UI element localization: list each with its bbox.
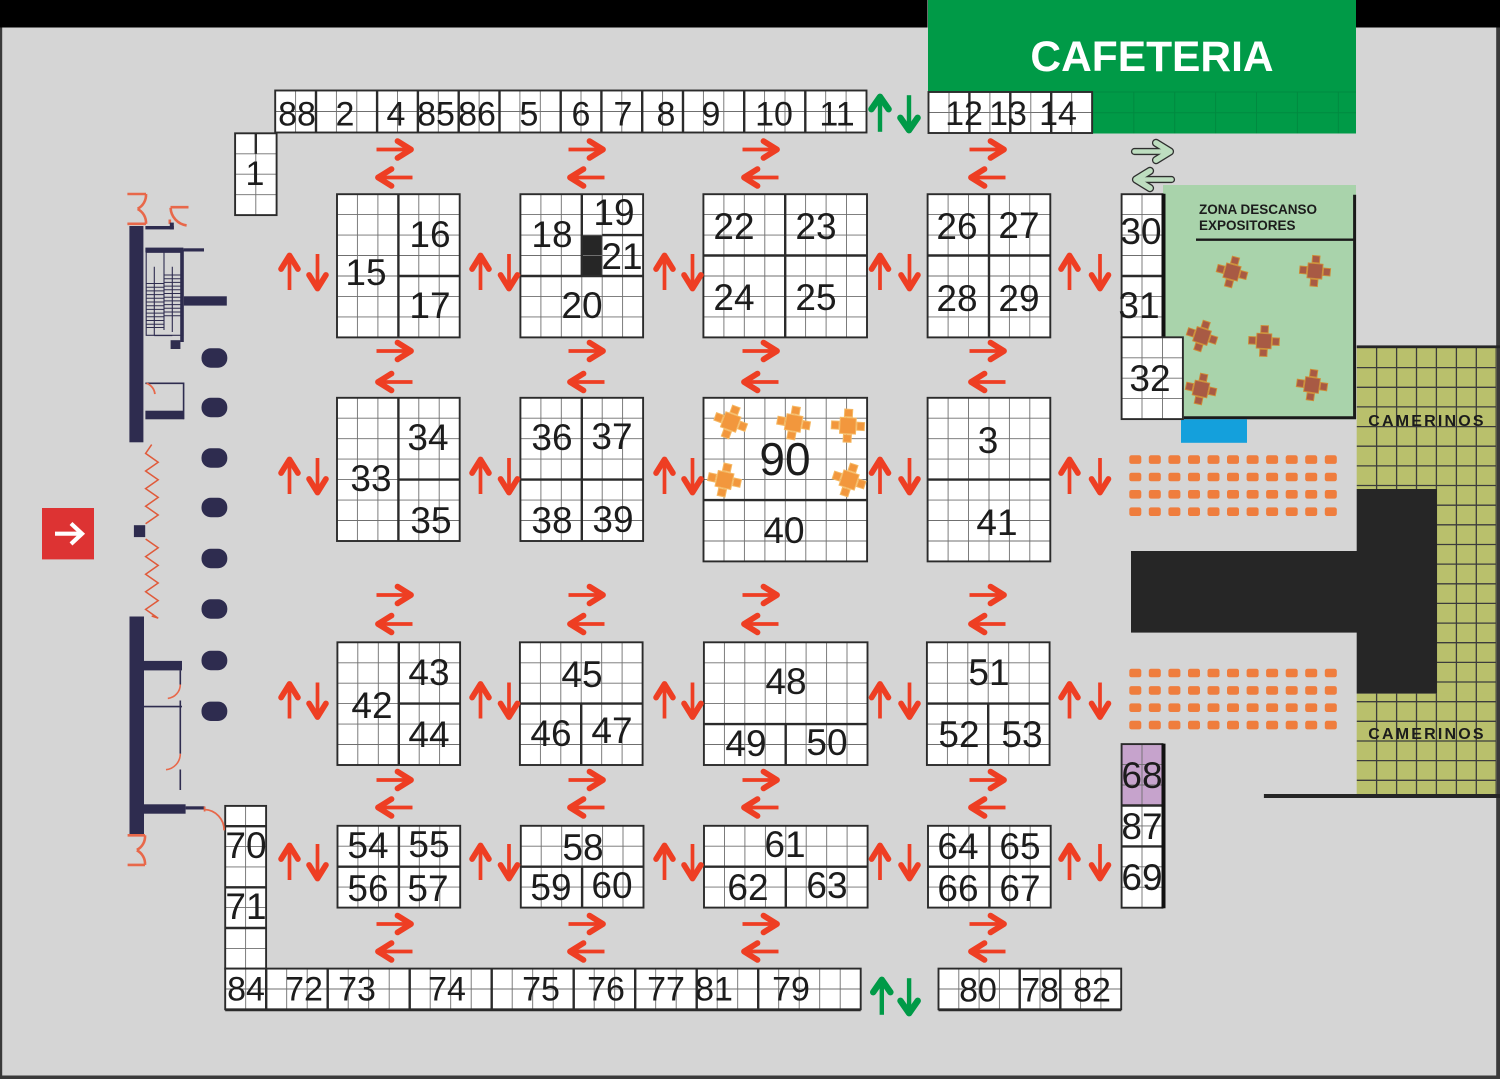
svg-text:29: 29 xyxy=(998,278,1039,319)
svg-text:69: 69 xyxy=(1121,857,1162,898)
svg-text:33: 33 xyxy=(350,458,391,499)
svg-text:70: 70 xyxy=(225,825,266,866)
svg-text:49: 49 xyxy=(725,723,766,764)
svg-text:12: 12 xyxy=(945,95,983,133)
svg-text:76: 76 xyxy=(587,971,625,1009)
svg-text:3: 3 xyxy=(978,420,999,461)
svg-text:7: 7 xyxy=(614,96,633,134)
svg-text:81: 81 xyxy=(695,971,733,1009)
svg-text:25: 25 xyxy=(795,277,836,318)
svg-text:CAMERINOS: CAMERINOS xyxy=(1368,726,1486,743)
svg-text:46: 46 xyxy=(530,713,571,754)
svg-text:9: 9 xyxy=(702,96,721,134)
svg-text:13: 13 xyxy=(989,95,1027,133)
svg-text:16: 16 xyxy=(409,214,450,255)
svg-text:86: 86 xyxy=(458,96,496,134)
svg-text:5: 5 xyxy=(520,96,539,134)
svg-text:66: 66 xyxy=(937,868,978,909)
svg-text:41: 41 xyxy=(976,502,1017,543)
svg-text:24: 24 xyxy=(713,277,754,318)
svg-text:60: 60 xyxy=(591,865,632,906)
svg-text:77: 77 xyxy=(647,971,685,1009)
svg-text:22: 22 xyxy=(713,206,754,247)
svg-text:EXPOSITORES: EXPOSITORES xyxy=(1199,218,1296,233)
svg-text:11: 11 xyxy=(819,96,854,134)
svg-text:26: 26 xyxy=(936,206,977,247)
svg-text:6: 6 xyxy=(572,96,591,134)
svg-text:61: 61 xyxy=(764,824,805,865)
svg-text:79: 79 xyxy=(772,971,810,1009)
svg-text:62: 62 xyxy=(727,867,768,908)
svg-text:35: 35 xyxy=(410,500,451,541)
svg-text:19: 19 xyxy=(593,192,634,233)
svg-text:47: 47 xyxy=(591,710,632,751)
svg-text:80: 80 xyxy=(959,972,997,1010)
svg-text:90: 90 xyxy=(759,433,810,485)
svg-text:54: 54 xyxy=(347,825,388,866)
svg-text:34: 34 xyxy=(407,417,448,458)
svg-text:8: 8 xyxy=(657,96,676,134)
svg-text:39: 39 xyxy=(592,499,633,540)
svg-text:71: 71 xyxy=(225,886,266,927)
svg-text:30: 30 xyxy=(1120,211,1161,252)
svg-text:50: 50 xyxy=(806,722,847,763)
svg-text:53: 53 xyxy=(1001,714,1042,755)
svg-text:10: 10 xyxy=(755,96,793,134)
svg-text:CAFETERIA: CAFETERIA xyxy=(1030,34,1273,81)
svg-text:42: 42 xyxy=(351,685,392,726)
svg-text:55: 55 xyxy=(408,824,449,865)
svg-text:68: 68 xyxy=(1121,755,1162,796)
svg-text:2: 2 xyxy=(336,96,355,134)
svg-text:37: 37 xyxy=(591,416,632,457)
svg-text:84: 84 xyxy=(227,971,265,1009)
svg-text:38: 38 xyxy=(531,500,572,541)
svg-text:18: 18 xyxy=(531,214,572,255)
svg-text:51: 51 xyxy=(968,652,1009,693)
svg-text:75: 75 xyxy=(522,971,560,1009)
svg-text:44: 44 xyxy=(408,714,449,755)
svg-text:20: 20 xyxy=(561,285,602,326)
svg-text:82: 82 xyxy=(1073,972,1111,1010)
svg-text:59: 59 xyxy=(530,867,571,908)
svg-text:88: 88 xyxy=(278,96,316,134)
svg-text:14: 14 xyxy=(1039,95,1077,133)
svg-text:15: 15 xyxy=(345,252,386,293)
svg-text:78: 78 xyxy=(1021,972,1059,1010)
svg-text:48: 48 xyxy=(765,661,806,702)
svg-text:67: 67 xyxy=(999,868,1040,909)
svg-text:74: 74 xyxy=(428,971,466,1009)
svg-text:17: 17 xyxy=(409,285,450,326)
svg-text:65: 65 xyxy=(999,826,1040,867)
svg-text:56: 56 xyxy=(347,868,388,909)
svg-text:CAMERINOS: CAMERINOS xyxy=(1368,413,1486,430)
svg-text:85: 85 xyxy=(417,96,455,134)
svg-text:43: 43 xyxy=(408,652,449,693)
svg-text:21: 21 xyxy=(601,236,642,277)
svg-text:32: 32 xyxy=(1129,358,1170,399)
svg-text:72: 72 xyxy=(285,971,323,1009)
svg-text:58: 58 xyxy=(562,827,603,868)
svg-text:73: 73 xyxy=(338,971,376,1009)
svg-text:63: 63 xyxy=(806,865,847,906)
svg-text:57: 57 xyxy=(407,868,448,909)
svg-text:27: 27 xyxy=(998,205,1039,246)
svg-text:45: 45 xyxy=(561,654,602,695)
svg-text:52: 52 xyxy=(938,714,979,755)
svg-text:36: 36 xyxy=(531,417,572,458)
svg-text:1: 1 xyxy=(246,155,265,193)
svg-text:31: 31 xyxy=(1118,285,1159,326)
svg-text:87: 87 xyxy=(1121,806,1162,847)
svg-text:40: 40 xyxy=(763,510,804,551)
svg-text:64: 64 xyxy=(937,826,978,867)
svg-text:23: 23 xyxy=(795,206,836,247)
svg-text:28: 28 xyxy=(936,278,977,319)
svg-text:ZONA DESCANSO: ZONA DESCANSO xyxy=(1199,202,1317,217)
svg-text:4: 4 xyxy=(387,96,406,134)
